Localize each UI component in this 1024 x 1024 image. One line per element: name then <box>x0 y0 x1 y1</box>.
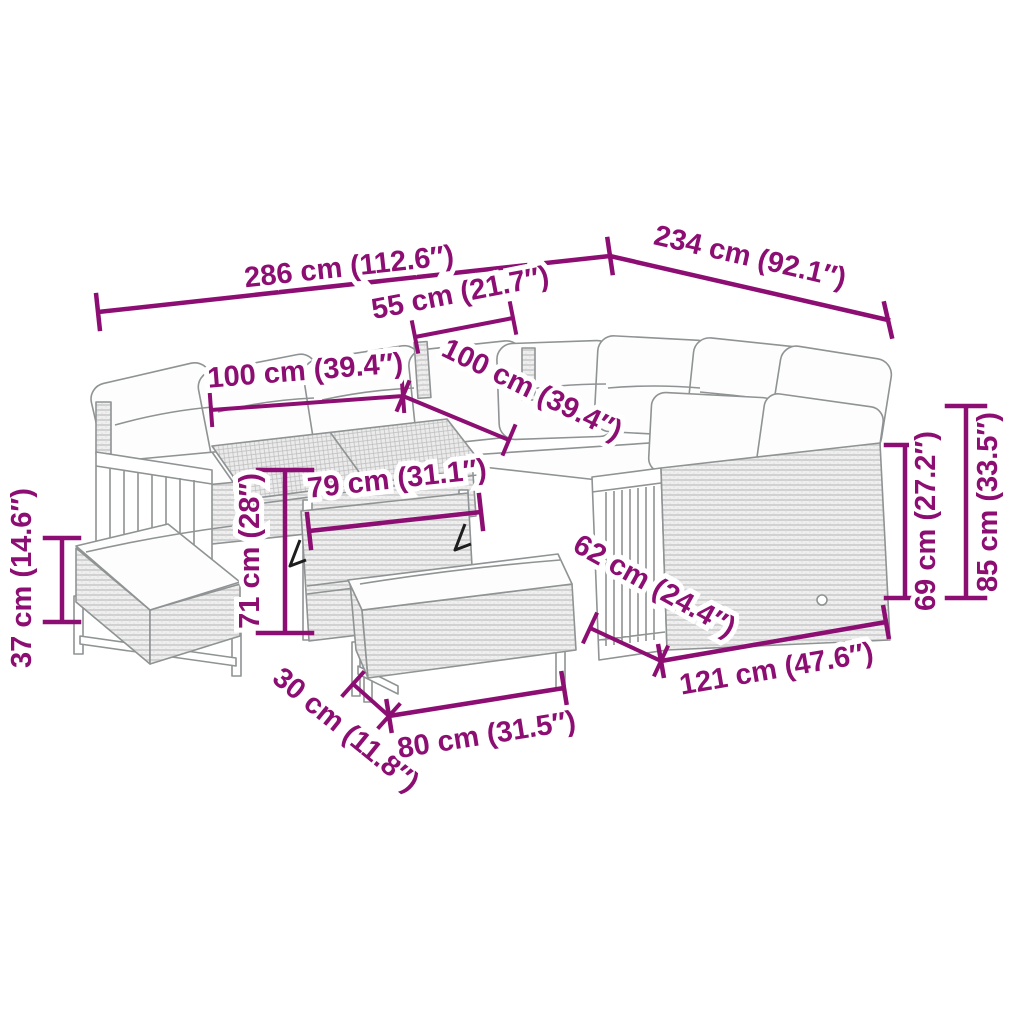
dimension-bench-length: 80 cm (31.5″) <box>387 673 578 765</box>
dimension-bench-depth: 30 cm (11.8″) <box>266 661 425 798</box>
drain-hole <box>817 595 827 605</box>
dimension-label: 37 cm (14.6″) <box>6 488 38 668</box>
rattan-post <box>96 402 111 454</box>
dimension-overall-depth-right: 234 cm (92.1″) <box>610 220 892 337</box>
dimension-label: 234 cm (92.1″) <box>651 220 849 295</box>
dimension-label: 69 cm (27.2″) <box>910 431 942 611</box>
product-dimension-diagram: 286 cm (112.6″) 234 cm (92.1″) 55 cm (21… <box>0 0 1024 1024</box>
dimension-label: 71 cm (28″) <box>234 473 266 629</box>
diagram-svg: 286 cm (112.6″) 234 cm (92.1″) 55 cm (21… <box>0 0 1024 1024</box>
dimension-total-height: 85 cm (33.5″) <box>947 406 1004 598</box>
dimension-label: 80 cm (31.5″) <box>395 705 578 765</box>
dimension-bench-height: 37 cm (14.6″) <box>6 488 79 668</box>
left-bench <box>74 524 241 676</box>
middle-bench <box>348 554 576 702</box>
dimension-label: 30 cm (11.8″) <box>266 661 425 798</box>
dimension-label: 85 cm (33.5″) <box>972 412 1004 592</box>
dimension-seat-back-height: 69 cm (27.2″) <box>886 431 942 611</box>
